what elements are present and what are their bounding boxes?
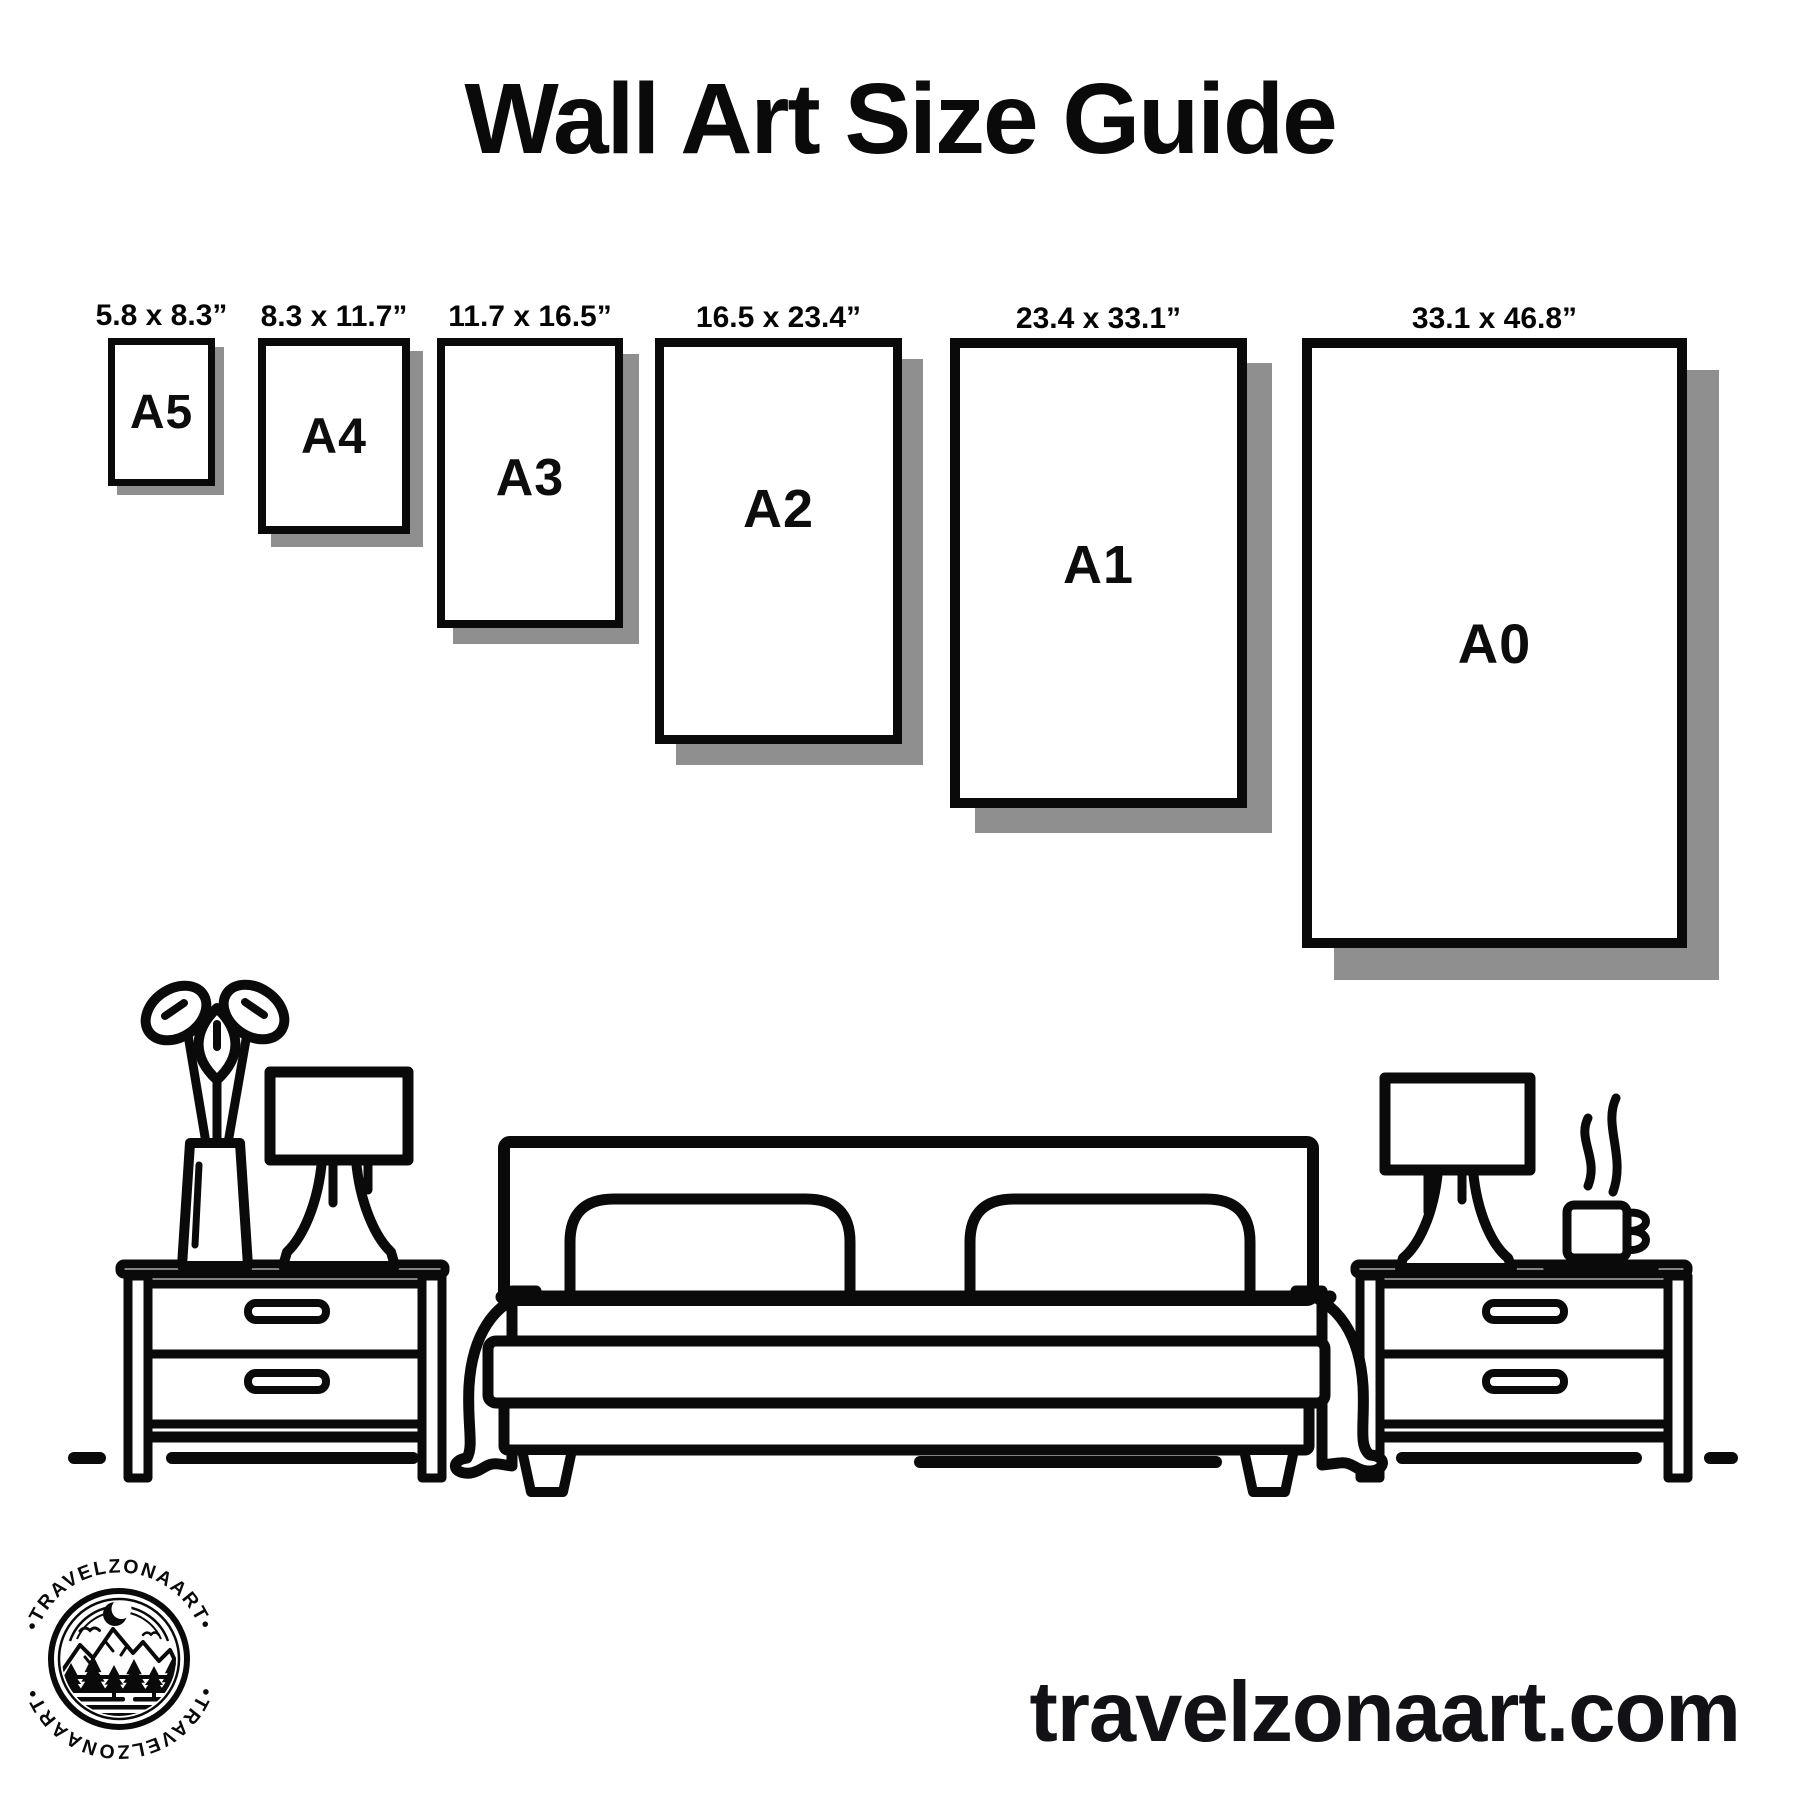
frame-a1-dimensions: 23.4 x 33.1” [1016,302,1181,336]
frame-a2: 16.5 x 23.4” A2 [655,338,902,744]
website-url: travelzonaart.com [1030,1664,1740,1762]
frame-a3: 11.7 x 16.5” A3 [437,338,623,628]
frame-a0-label: A0 [1458,611,1532,676]
frame-a2-label: A2 [743,478,814,540]
bed-lower-rail [504,1403,1309,1450]
frame-a4-dimensions: 8.3 x 11.7” [261,300,408,334]
double-bed-icon [455,1142,1382,1492]
frame-a2-dimensions: 16.5 x 23.4” [696,301,861,335]
bed-leg-left [522,1450,572,1492]
size-guide-poster: Wall Art Size Guide 5.8 x 8.3” A5 8.3 x … [0,0,1800,1800]
bedroom-illustration [0,960,1800,1520]
frame-a3-label: A3 [496,448,564,508]
table-lamp-left-icon [270,1072,408,1266]
pillow-right [970,1199,1250,1300]
frame-a4: 8.3 x 11.7” A4 [258,338,410,534]
frame-a5: 5.8 x 8.3” A5 [108,338,215,486]
frame-a5-label: A5 [130,385,193,440]
frame-a3-dimensions: 11.7 x 16.5” [448,300,611,334]
frame-a1: 23.4 x 33.1” A1 [950,338,1247,808]
frame-a1-label: A1 [1063,534,1134,596]
page-title: Wall Art Size Guide [0,62,1800,177]
pillow-left [570,1199,850,1300]
coffee-mug-icon [1548,1098,1654,1266]
bed-front-panel [488,1341,1325,1403]
frame-a0-dimensions: 33.1 x 46.8” [1412,302,1577,336]
frame-a5-dimensions: 5.8 x 8.3” [96,299,228,333]
floor-line [74,1458,1732,1462]
table-lamp-right-icon [1385,1078,1530,1268]
bed-leg-right [1244,1450,1294,1492]
brand-logo: •TRAVELZONAART• •TRAVELZONAART• [5,1545,233,1773]
nightstand-left-icon [120,1264,445,1478]
frame-a4-label: A4 [301,407,367,465]
frame-a0: 33.1 x 46.8” A0 [1302,338,1687,948]
nightstand-right-icon [1355,1264,1688,1478]
